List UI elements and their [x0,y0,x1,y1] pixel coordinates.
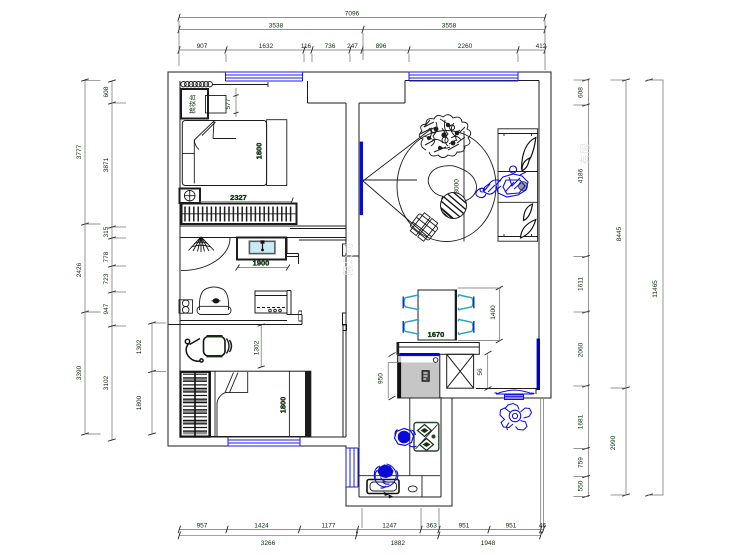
svg-text:951: 951 [506,523,517,530]
svg-text:1900: 1900 [253,259,270,268]
svg-text:1948: 1948 [481,540,496,547]
svg-text:778: 778 [103,251,110,262]
svg-text:2060: 2060 [578,342,585,357]
svg-text:3102: 3102 [103,375,110,390]
svg-text:951: 951 [459,523,470,530]
svg-text:116: 116 [301,43,312,50]
svg-text:1670: 1670 [428,330,445,339]
svg-text:608: 608 [578,87,585,98]
svg-text:2260: 2260 [458,43,473,50]
svg-text:363: 363 [426,523,437,530]
svg-text:梳妆台: 梳妆台 [188,94,197,114]
svg-text:1800: 1800 [279,397,288,414]
svg-text:1681: 1681 [578,414,585,429]
svg-text:950: 950 [378,373,385,384]
svg-text:56: 56 [477,368,484,376]
svg-text:2990: 2990 [610,435,617,450]
svg-text:3538: 3538 [269,23,284,30]
svg-text:1800: 1800 [136,395,143,410]
svg-text:3558: 3558 [442,23,457,30]
svg-text:3390: 3390 [76,365,83,380]
svg-text:957: 957 [197,523,208,530]
svg-text:608: 608 [103,86,110,97]
svg-text:1177: 1177 [322,523,336,530]
svg-text:有限: 有限 [578,143,592,165]
svg-text:8445: 8445 [616,226,623,241]
svg-text:2327: 2327 [230,193,247,202]
svg-text:759: 759 [578,457,585,468]
svg-text:1302: 1302 [136,339,143,354]
svg-text:907: 907 [197,43,208,50]
svg-text:412: 412 [536,43,547,50]
svg-text:3000: 3000 [454,179,461,194]
svg-text:1247: 1247 [382,523,397,530]
svg-text:723: 723 [103,273,110,284]
svg-text:1882: 1882 [391,540,406,547]
svg-text:247: 247 [347,43,358,50]
svg-text:11465: 11465 [652,280,659,298]
svg-text:46: 46 [539,523,547,530]
svg-text:1400: 1400 [490,305,497,320]
svg-text:3266: 3266 [261,540,276,547]
svg-text:1424: 1424 [254,523,269,530]
svg-text:896: 896 [376,43,387,50]
svg-text:315: 315 [103,226,110,237]
svg-text:3777: 3777 [76,144,83,159]
svg-text:577: 577 [225,98,232,109]
svg-text:2426: 2426 [76,262,83,277]
svg-text:550: 550 [578,480,585,491]
svg-text:736: 736 [325,43,336,50]
svg-text:限公司: 限公司 [342,243,355,276]
svg-text:4186: 4186 [578,168,585,183]
svg-text:3871: 3871 [103,157,110,172]
svg-text:1302: 1302 [254,340,261,355]
svg-text:1800: 1800 [255,143,264,160]
svg-text:1611: 1611 [578,277,585,291]
svg-text:7096: 7096 [345,11,360,18]
svg-text:1632: 1632 [259,43,274,50]
svg-text:947: 947 [103,303,110,314]
